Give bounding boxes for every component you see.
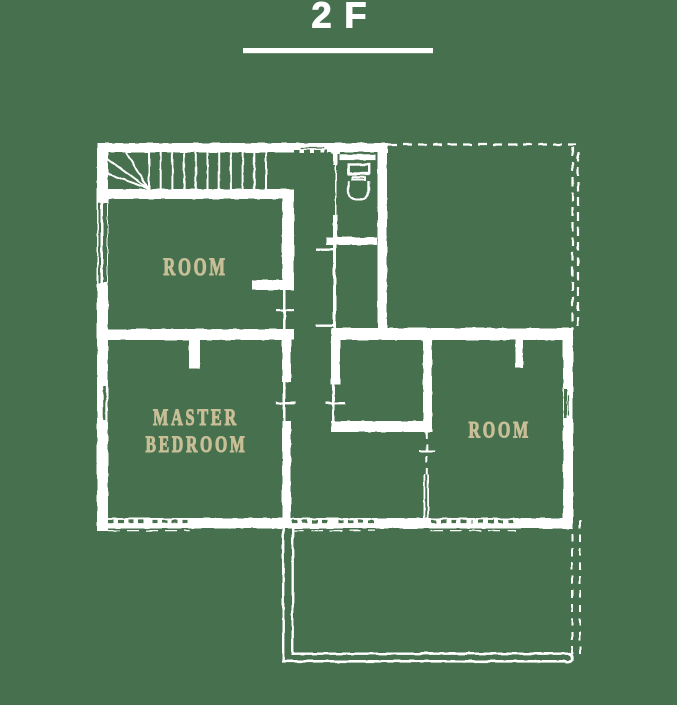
svg-text:MASTER: MASTER — [153, 405, 239, 431]
svg-text:2 F: 2 F — [311, 0, 367, 36]
svg-text:ROOM: ROOM — [468, 418, 531, 444]
svg-text:ROOM: ROOM — [163, 254, 228, 281]
svg-text:BEDROOM: BEDROOM — [146, 432, 248, 458]
